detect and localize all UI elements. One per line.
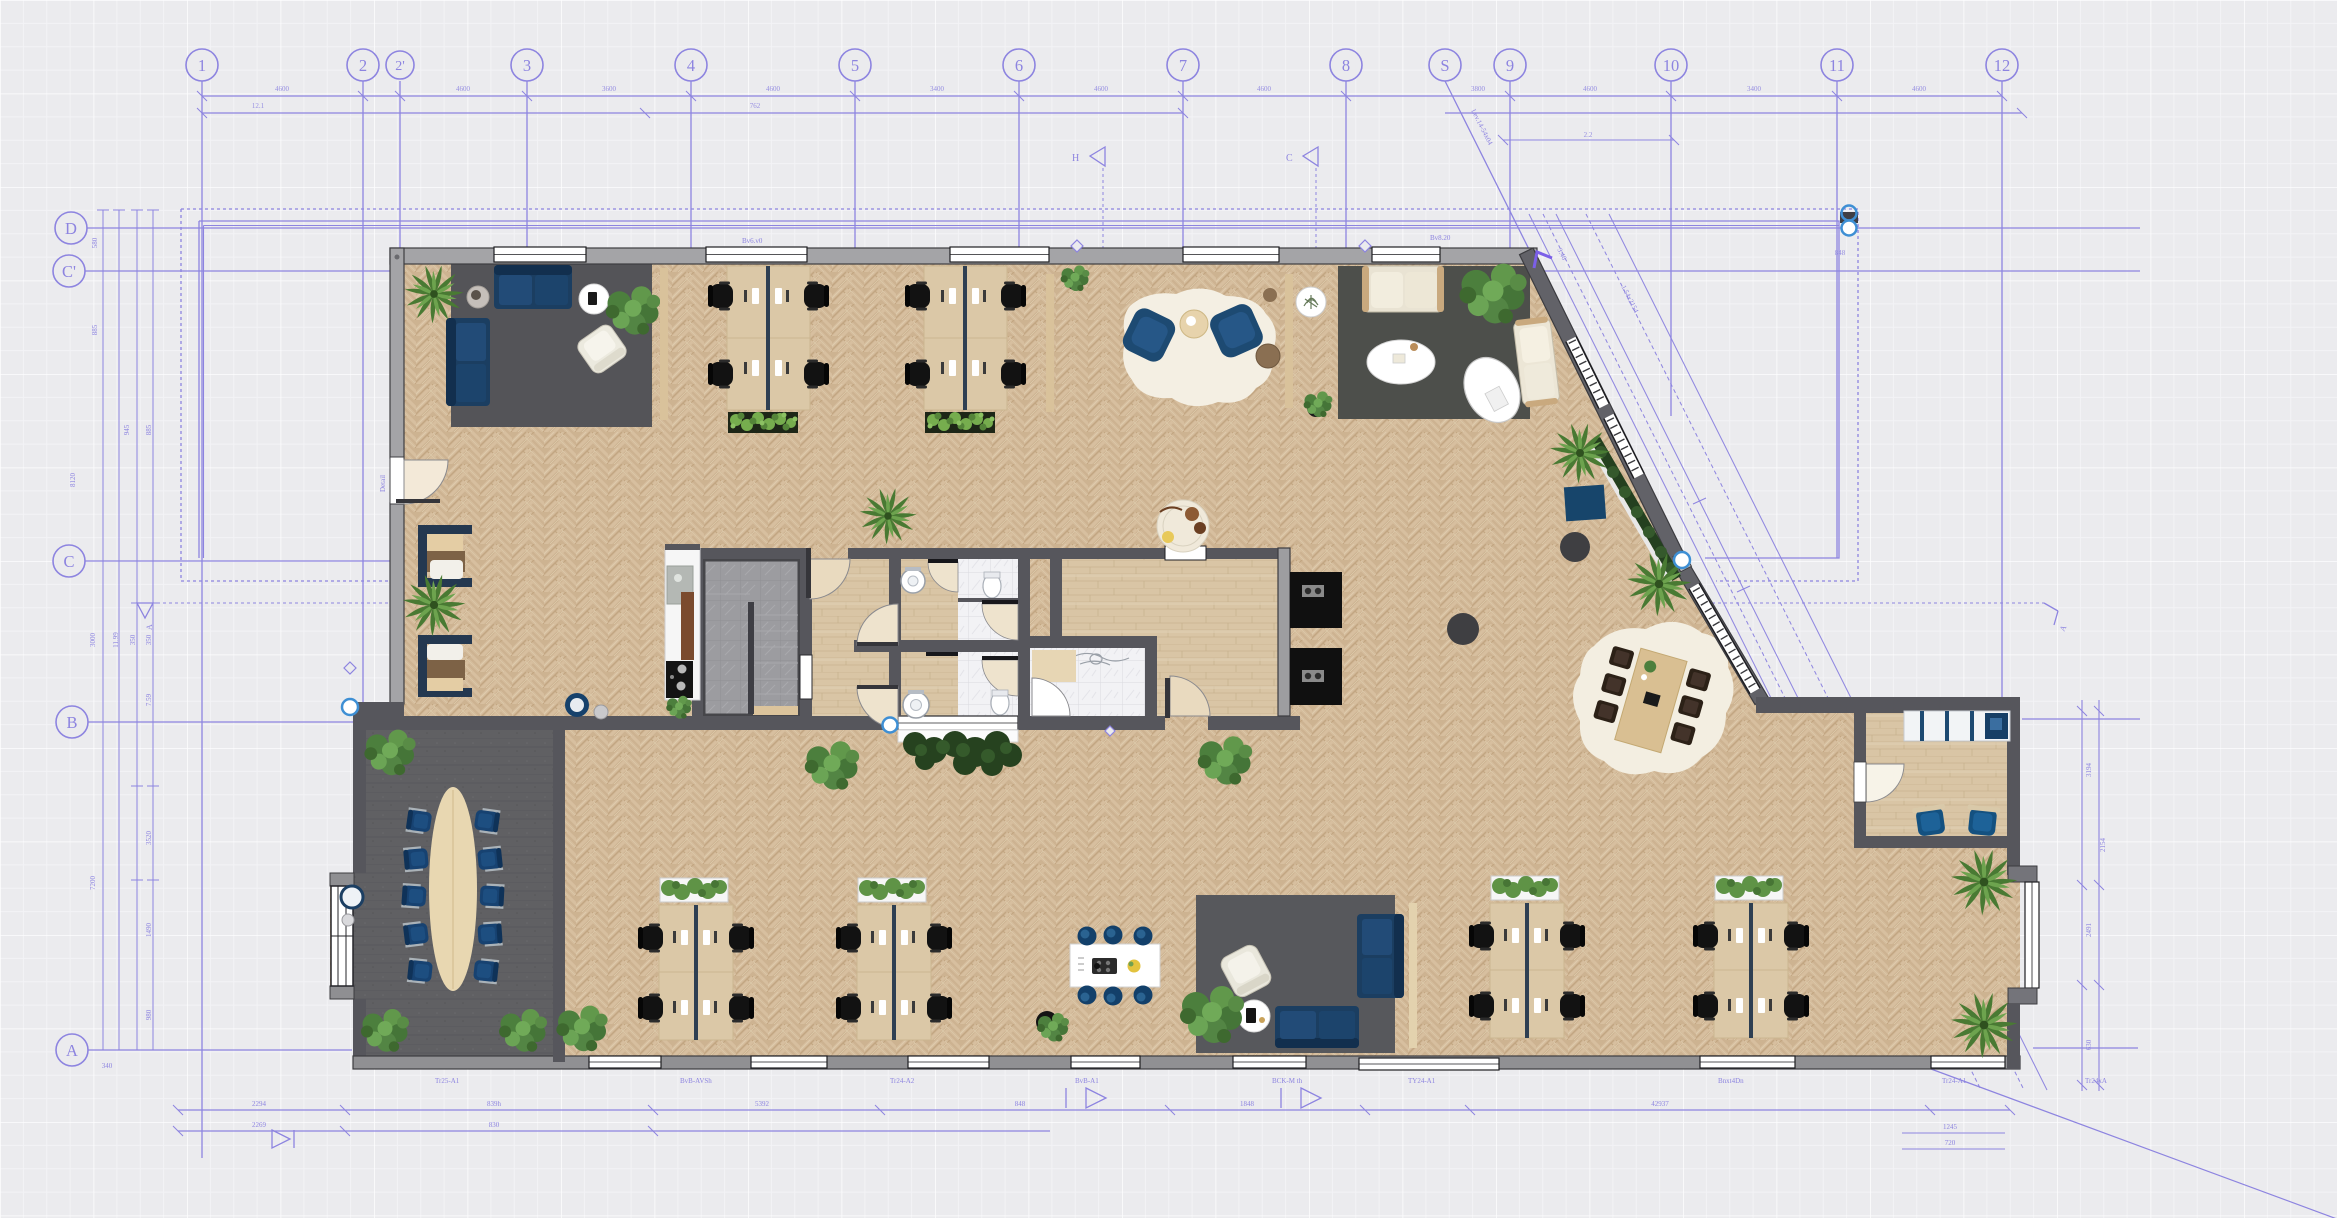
- svg-text:4600: 4600: [456, 85, 471, 93]
- svg-text:5: 5: [851, 56, 859, 75]
- svg-text:12.1: 12.1: [252, 102, 265, 110]
- svg-text:Detail: Detail: [379, 475, 387, 492]
- svg-text:2269: 2269: [252, 1121, 267, 1129]
- svg-text:TY24-A1: TY24-A1: [1408, 1077, 1436, 1085]
- svg-text:1490: 1490: [145, 923, 153, 938]
- svg-text:1848: 1848: [1240, 1100, 1255, 1108]
- svg-text:980: 980: [145, 1009, 153, 1020]
- svg-text:945: 945: [123, 424, 131, 435]
- svg-text:12: 12: [1994, 56, 2011, 75]
- svg-text:Tr24-A2: Tr24-A2: [890, 1077, 915, 1085]
- svg-text:4: 4: [687, 56, 695, 75]
- svg-text:3400: 3400: [1747, 85, 1762, 93]
- svg-text:3600: 3600: [602, 85, 617, 93]
- svg-text:350: 350: [145, 634, 153, 645]
- svg-text:BvB-A1: BvB-A1: [1075, 1077, 1099, 1085]
- svg-text:885: 885: [145, 424, 153, 435]
- svg-text:11.99: 11.99: [112, 632, 120, 648]
- svg-text:7200: 7200: [89, 876, 97, 891]
- svg-text:1245: 1245: [1943, 1123, 1958, 1131]
- svg-text:8120: 8120: [69, 473, 77, 488]
- svg-text:2.2: 2.2: [1584, 131, 1593, 139]
- svg-text:1: 1: [198, 56, 206, 75]
- svg-text:4600: 4600: [766, 85, 781, 93]
- svg-text:2154: 2154: [2099, 838, 2107, 853]
- svg-text:Tr24-A1: Tr24-A1: [1942, 1077, 1967, 1085]
- svg-text:340: 340: [102, 1062, 113, 1070]
- svg-text:580: 580: [91, 237, 99, 248]
- svg-text:Bv6.v0: Bv6.v0: [742, 237, 763, 245]
- svg-text:350: 350: [129, 634, 137, 645]
- svg-text:C: C: [1286, 153, 1293, 164]
- svg-text:Tr24xA: Tr24xA: [2085, 1077, 2107, 1085]
- svg-text:4600: 4600: [1912, 85, 1927, 93]
- svg-text:C': C': [62, 262, 76, 281]
- svg-text:720: 720: [1945, 1139, 1956, 1147]
- svg-text:4600: 4600: [1257, 85, 1272, 93]
- svg-text:4600: 4600: [1583, 85, 1598, 93]
- svg-text:S: S: [1440, 56, 1449, 75]
- svg-text:42937: 42937: [1651, 1100, 1669, 1108]
- svg-text:630: 630: [2085, 1039, 2093, 1050]
- svg-text:BCK-M th: BCK-M th: [1272, 1077, 1303, 1085]
- svg-text:Bnxt4Dn: Bnxt4Dn: [1718, 1077, 1744, 1085]
- svg-text:3194: 3194: [2085, 763, 2093, 778]
- svg-text:2491: 2491: [2085, 923, 2093, 938]
- svg-text:Bv8.20: Bv8.20: [1430, 234, 1451, 242]
- svg-text:8: 8: [1342, 56, 1350, 75]
- svg-text:4600: 4600: [1094, 85, 1109, 93]
- svg-text:762: 762: [750, 102, 761, 110]
- svg-text:B: B: [66, 713, 77, 732]
- svg-text:D: D: [65, 219, 77, 238]
- svg-text:7.59: 7.59: [145, 693, 153, 706]
- svg-text:C: C: [63, 552, 74, 571]
- svg-text:3520: 3520: [145, 831, 153, 846]
- svg-text:3: 3: [523, 56, 531, 75]
- svg-text:2: 2: [359, 56, 367, 75]
- svg-text:830: 830: [489, 1121, 500, 1129]
- svg-text:5392: 5392: [755, 1100, 770, 1108]
- svg-text:9: 9: [1506, 56, 1514, 75]
- svg-text:3000: 3000: [89, 633, 97, 648]
- svg-text:2': 2': [395, 59, 405, 74]
- svg-text:A: A: [145, 624, 154, 630]
- svg-text:2294: 2294: [252, 1100, 267, 1108]
- svg-text:3400: 3400: [930, 85, 945, 93]
- svg-text:839h: 839h: [487, 1100, 502, 1108]
- svg-text:Tr25-A1: Tr25-A1: [435, 1077, 460, 1085]
- svg-text:7: 7: [1179, 56, 1187, 75]
- svg-text:10: 10: [1663, 56, 1680, 75]
- svg-text:BvB-AVSh: BvB-AVSh: [680, 1077, 712, 1085]
- svg-text:3800: 3800: [1471, 85, 1486, 93]
- svg-text:885: 885: [91, 324, 99, 335]
- svg-text:6: 6: [1015, 56, 1023, 75]
- svg-text:11: 11: [1829, 56, 1845, 75]
- svg-text:A: A: [66, 1041, 78, 1060]
- svg-text:848: 848: [1835, 249, 1846, 257]
- svg-text:4600: 4600: [275, 85, 290, 93]
- svg-text:848: 848: [1015, 1100, 1026, 1108]
- svg-text:H: H: [1072, 153, 1079, 164]
